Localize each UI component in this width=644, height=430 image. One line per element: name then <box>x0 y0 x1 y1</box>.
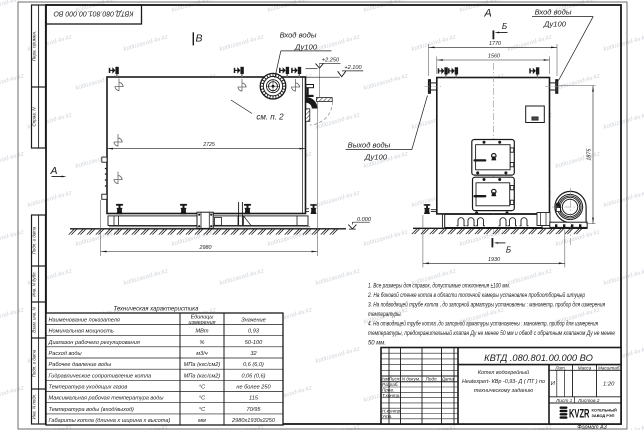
svg-text:Рабочее давление воды: Рабочее давление воды <box>49 362 112 368</box>
svg-text:Габариты котла (длинна х ширин: Габариты котла (длинна х ширина х высота… <box>49 418 171 424</box>
svg-text:Подп. и дата: Подп. и дата <box>32 349 37 377</box>
svg-text:Инв. N подл.: Инв. N подл. <box>32 394 37 420</box>
svg-text:°С: °С <box>199 396 206 402</box>
svg-text:не более 250: не более 250 <box>236 385 271 391</box>
svg-text:ЗАВОД РЭП: ЗАВОД РЭП <box>592 413 615 418</box>
svg-text:Б: Б <box>506 246 511 255</box>
svg-text:Масштаб: Масштаб <box>598 365 620 370</box>
svg-text:Вход воды: Вход воды <box>535 8 572 17</box>
svg-text:МПа (кгс/см2): МПа (кгс/см2) <box>184 373 221 379</box>
svg-text:Температура уходящих газов: Температура уходящих газов <box>49 385 128 391</box>
svg-text:1:20: 1:20 <box>603 382 615 388</box>
svg-text:техническому заданию: техническому заданию <box>474 388 533 394</box>
svg-text:Н.контр.: Н.контр. <box>382 409 401 414</box>
svg-text:115: 115 <box>249 396 259 402</box>
svg-text:0,93: 0,93 <box>248 329 260 335</box>
svg-text:измерения: измерения <box>189 320 216 326</box>
svg-text:°С: °С <box>199 385 206 391</box>
svg-text:Т.контр.: Т.контр. <box>382 393 401 398</box>
svg-text:%: % <box>200 340 205 346</box>
svg-text:А: А <box>49 165 57 177</box>
svg-text:Лист 1: Лист 1 <box>555 398 573 404</box>
svg-text:70/95: 70/95 <box>247 407 262 413</box>
svg-text:Котел водогрейный: Котел водогрейный <box>478 369 529 376</box>
svg-text:Листов 2: Листов 2 <box>577 398 600 404</box>
svg-text:Подп.: Подп. <box>426 376 438 381</box>
svg-text:температуры, предохранительный: температуры, предохранительный клапан Ду… <box>368 330 615 337</box>
svg-text:Подп. и дата: Подп. и дата <box>32 226 37 254</box>
svg-text:Справ. N: Справ. N <box>32 107 37 127</box>
svg-text:Инв. N дубл.: Инв. N дубл. <box>32 271 37 296</box>
svg-text:2980: 2980 <box>199 245 212 251</box>
svg-text:см. п. 2: см. п. 2 <box>256 113 284 122</box>
svg-text:Диапазон рабочего регулировани: Диапазон рабочего регулирования <box>48 340 140 346</box>
svg-text:Лит.: Лит. <box>554 365 566 370</box>
svg-text:1. Все размеры для справок, д: 1. Все размеры для справок, допустимые о… <box>368 283 510 290</box>
svg-text:Температура воды (вход/выход): Температура воды (вход/выход) <box>49 407 135 413</box>
svg-text:2725: 2725 <box>202 142 215 148</box>
svg-text:2. На боковой стенке котла в: 2. На боковой стенке котла в области топ… <box>367 292 585 299</box>
svg-text:Номинальная мощность: Номинальная мощность <box>49 329 114 335</box>
svg-text:Ду100: Ду100 <box>364 153 388 162</box>
svg-text:МВт: МВт <box>195 329 208 335</box>
svg-text:+2.100: +2.100 <box>344 65 362 71</box>
svg-text:Дата: Дата <box>441 376 455 381</box>
svg-text:Heatexpert- КВр -0,93- Д ( ПТ: Heatexpert- КВр -0,93- Д ( ПТ ) по <box>462 379 545 385</box>
svg-text:°С: °С <box>199 407 206 413</box>
svg-text:1560: 1560 <box>488 54 500 60</box>
svg-text:температуры.: температуры. <box>368 311 402 318</box>
svg-text:КВТД .080.801.00.000 ВО: КВТД .080.801.00.000 ВО <box>484 353 593 363</box>
svg-text:Выход воды: Выход воды <box>348 141 391 150</box>
svg-text:Наименование показателя: Наименование показателя <box>49 318 120 324</box>
svg-text:1875: 1875 <box>587 148 593 161</box>
svg-text:В: В <box>195 33 202 45</box>
svg-text:Пров.: Пров. <box>382 388 394 393</box>
svg-text:Перв. примен.: Перв. примен. <box>32 31 37 62</box>
svg-text:32: 32 <box>250 351 257 357</box>
svg-text:Б: Б <box>502 22 507 31</box>
svg-text:Взам. инв. N: Взам. инв. N <box>32 306 37 332</box>
svg-text:0,6 (6,0): 0,6 (6,0) <box>243 362 264 368</box>
svg-text:Расход воды: Расход воды <box>49 351 82 357</box>
svg-text:Лист: Лист <box>388 376 401 381</box>
svg-text:м3/ч: м3/ч <box>196 351 207 357</box>
svg-text:Разраб.: Разраб. <box>382 382 399 387</box>
svg-text:N докум.: N докум. <box>402 376 421 381</box>
svg-text:Вход воды: Вход воды <box>280 31 317 40</box>
svg-text:1770: 1770 <box>489 41 501 47</box>
svg-text:+2.250: +2.250 <box>322 57 340 63</box>
svg-text:Гидравлическое сопротивление к: Гидравлическое сопротивление котла <box>49 373 152 379</box>
svg-text:Масса: Масса <box>578 365 592 370</box>
svg-text:МПа (кгс/см2): МПа (кгс/см2) <box>184 362 221 368</box>
svg-text:А: А <box>483 8 491 20</box>
svg-text:1930: 1930 <box>488 257 500 263</box>
svg-text:2980х1930х2250: 2980х1930х2250 <box>231 418 276 424</box>
svg-text:КВТД.080.801.00.000 ВО: КВТД.080.801.00.000 ВО <box>53 10 133 17</box>
svg-text:Техническая характеристика: Техническая характеристика <box>114 307 200 313</box>
svg-text:Ду100: Ду100 <box>294 43 318 52</box>
svg-text:0,06 (0,6): 0,06 (0,6) <box>242 373 266 379</box>
svg-text:KVZR: KVZR <box>569 409 590 421</box>
svg-text:Ду100: Ду100 <box>543 20 567 29</box>
svg-text:50 мм.: 50 мм. <box>368 340 386 347</box>
svg-text:3. На подводящей трубе котла: 3. На подводящей трубе котла , до запорн… <box>368 302 606 309</box>
svg-text:мм: мм <box>198 418 206 424</box>
svg-text:Значение: Значение <box>241 318 266 324</box>
svg-text:Утв.: Утв. <box>382 414 392 419</box>
svg-text:Формат А3: Формат А3 <box>577 425 607 430</box>
svg-text:4. На отводящей трубе котла ,: 4. На отводящей трубе котла ,до запорной… <box>368 321 599 328</box>
svg-text:50-100: 50-100 <box>245 340 263 346</box>
svg-text:Максимальная рабочая температу: Максимальная рабочая температура воды <box>49 396 164 402</box>
